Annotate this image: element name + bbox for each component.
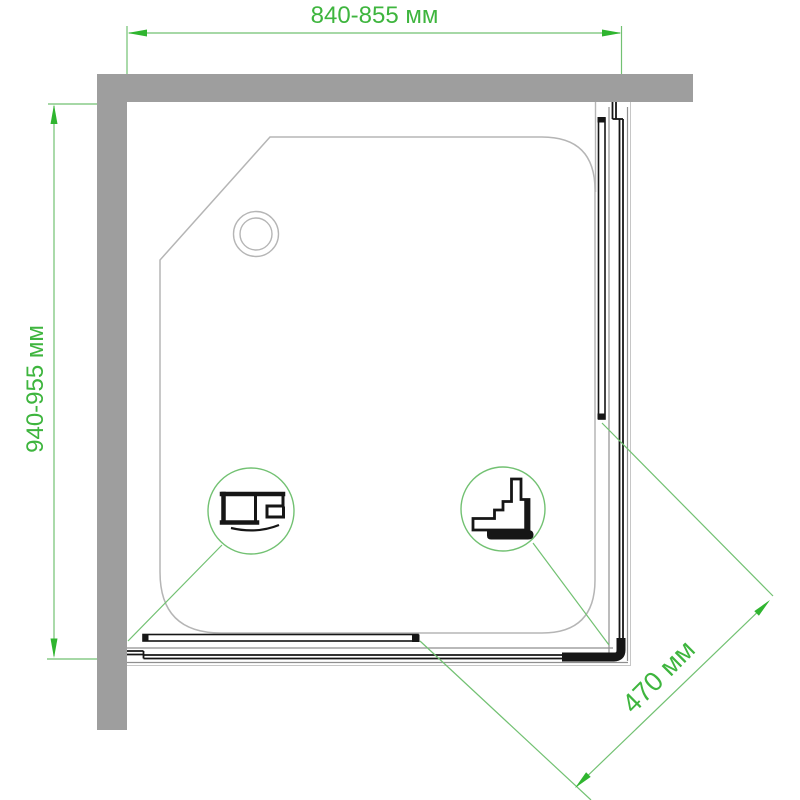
dimension-left: [47, 104, 97, 659]
dimension-top: [127, 26, 622, 74]
right-sliding-door: [599, 118, 606, 419]
bottom-sliding-door: [143, 635, 418, 642]
left-wall: [97, 74, 127, 730]
shower-enclosure-drawing: 840-855 мм 940-955 мм 470 мм: [0, 0, 800, 800]
bottom-door-assembly: [127, 634, 628, 663]
top-wall: [97, 74, 693, 102]
dimension-top-label: 840-855 мм: [127, 4, 622, 28]
shower-tray: [160, 137, 595, 633]
right-door-assembly: [598, 102, 628, 661]
dimension-left-label: 940-955 мм: [24, 289, 50, 489]
drawing-canvas: [0, 0, 800, 800]
